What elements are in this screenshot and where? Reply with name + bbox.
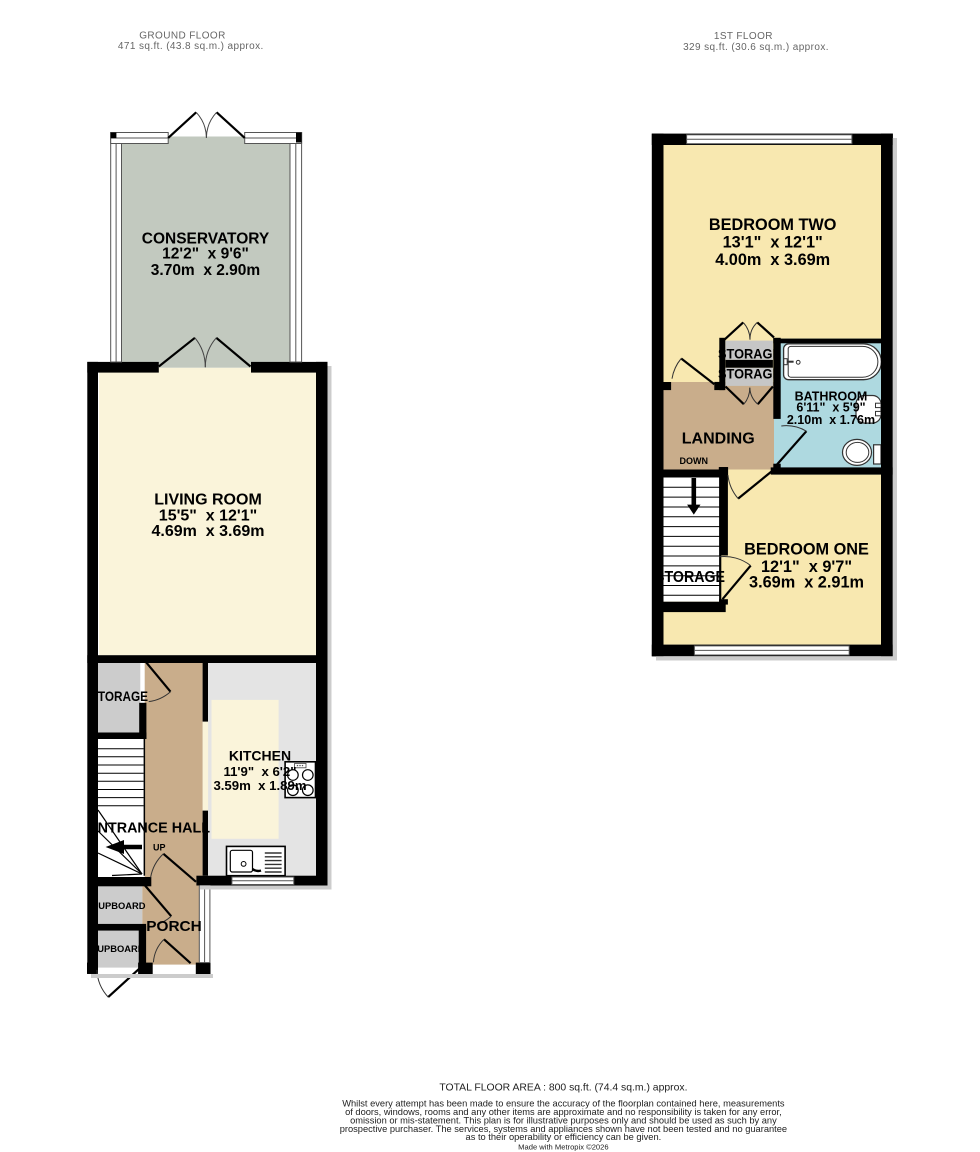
svg-text:4.00m x 3.69m: 4.00m x 3.69m	[715, 251, 830, 269]
svg-text:13'1" x 12'1": 13'1" x 12'1"	[723, 233, 823, 251]
svg-text:CUPBOARD: CUPBOARD	[92, 901, 146, 912]
svg-text:KITCHEN: KITCHEN	[229, 748, 291, 764]
svg-text:Made with Metropix ©2026: Made with Metropix ©2026	[518, 1142, 608, 1151]
svg-text:TOTAL FLOOR AREA : 800 sq.ft.: TOTAL FLOOR AREA : 800 sq.ft. (74.4 sq.m…	[439, 1083, 687, 1094]
svg-text:as to their operability or eff: as to their operability or efficiency ca…	[466, 1132, 662, 1142]
svg-text:3.69m x 2.91m: 3.69m x 2.91m	[749, 573, 864, 591]
svg-text:12'2" x 9'6": 12'2" x 9'6"	[162, 246, 249, 263]
svg-text:1ST FLOOR: 1ST FLOOR	[714, 31, 773, 42]
svg-text:3.59m x 1.89m: 3.59m x 1.89m	[213, 778, 306, 793]
svg-text:ENTRANCE HALL: ENTRANCE HALL	[88, 819, 210, 836]
svg-text:STORAGE: STORAGE	[655, 569, 725, 586]
svg-text:471 sq.ft. (43.8 sq.m.) approx: 471 sq.ft. (43.8 sq.m.) approx.	[118, 41, 264, 52]
svg-text:BEDROOM TWO: BEDROOM TWO	[709, 216, 837, 234]
svg-text:329 sq.ft. (30.6 sq.m.) approx: 329 sq.ft. (30.6 sq.m.) approx.	[683, 42, 829, 53]
svg-text:BEDROOM ONE: BEDROOM ONE	[744, 541, 869, 559]
svg-text:2.10m x 1.76m: 2.10m x 1.76m	[787, 413, 875, 427]
svg-text:DOWN: DOWN	[680, 456, 709, 466]
svg-text:STORAGE: STORAGE	[90, 688, 148, 704]
svg-text:11'9" x 6'2": 11'9" x 6'2"	[223, 764, 296, 779]
svg-text:LIVING ROOM: LIVING ROOM	[154, 492, 262, 509]
svg-text:GROUND FLOOR: GROUND FLOOR	[139, 30, 225, 41]
svg-text:STORAGE: STORAGE	[718, 346, 781, 361]
svg-text:PORCH: PORCH	[146, 918, 202, 935]
svg-text:UP: UP	[153, 843, 166, 853]
svg-text:CUPBOARD: CUPBOARD	[91, 944, 145, 955]
svg-text:LANDING: LANDING	[682, 431, 755, 448]
svg-text:STORAGE: STORAGE	[718, 367, 781, 382]
svg-text:4.69m x 3.69m: 4.69m x 3.69m	[152, 523, 265, 540]
svg-text:15'5" x 12'1": 15'5" x 12'1"	[159, 508, 257, 525]
svg-text:3.70m x 2.90m: 3.70m x 2.90m	[151, 262, 260, 279]
